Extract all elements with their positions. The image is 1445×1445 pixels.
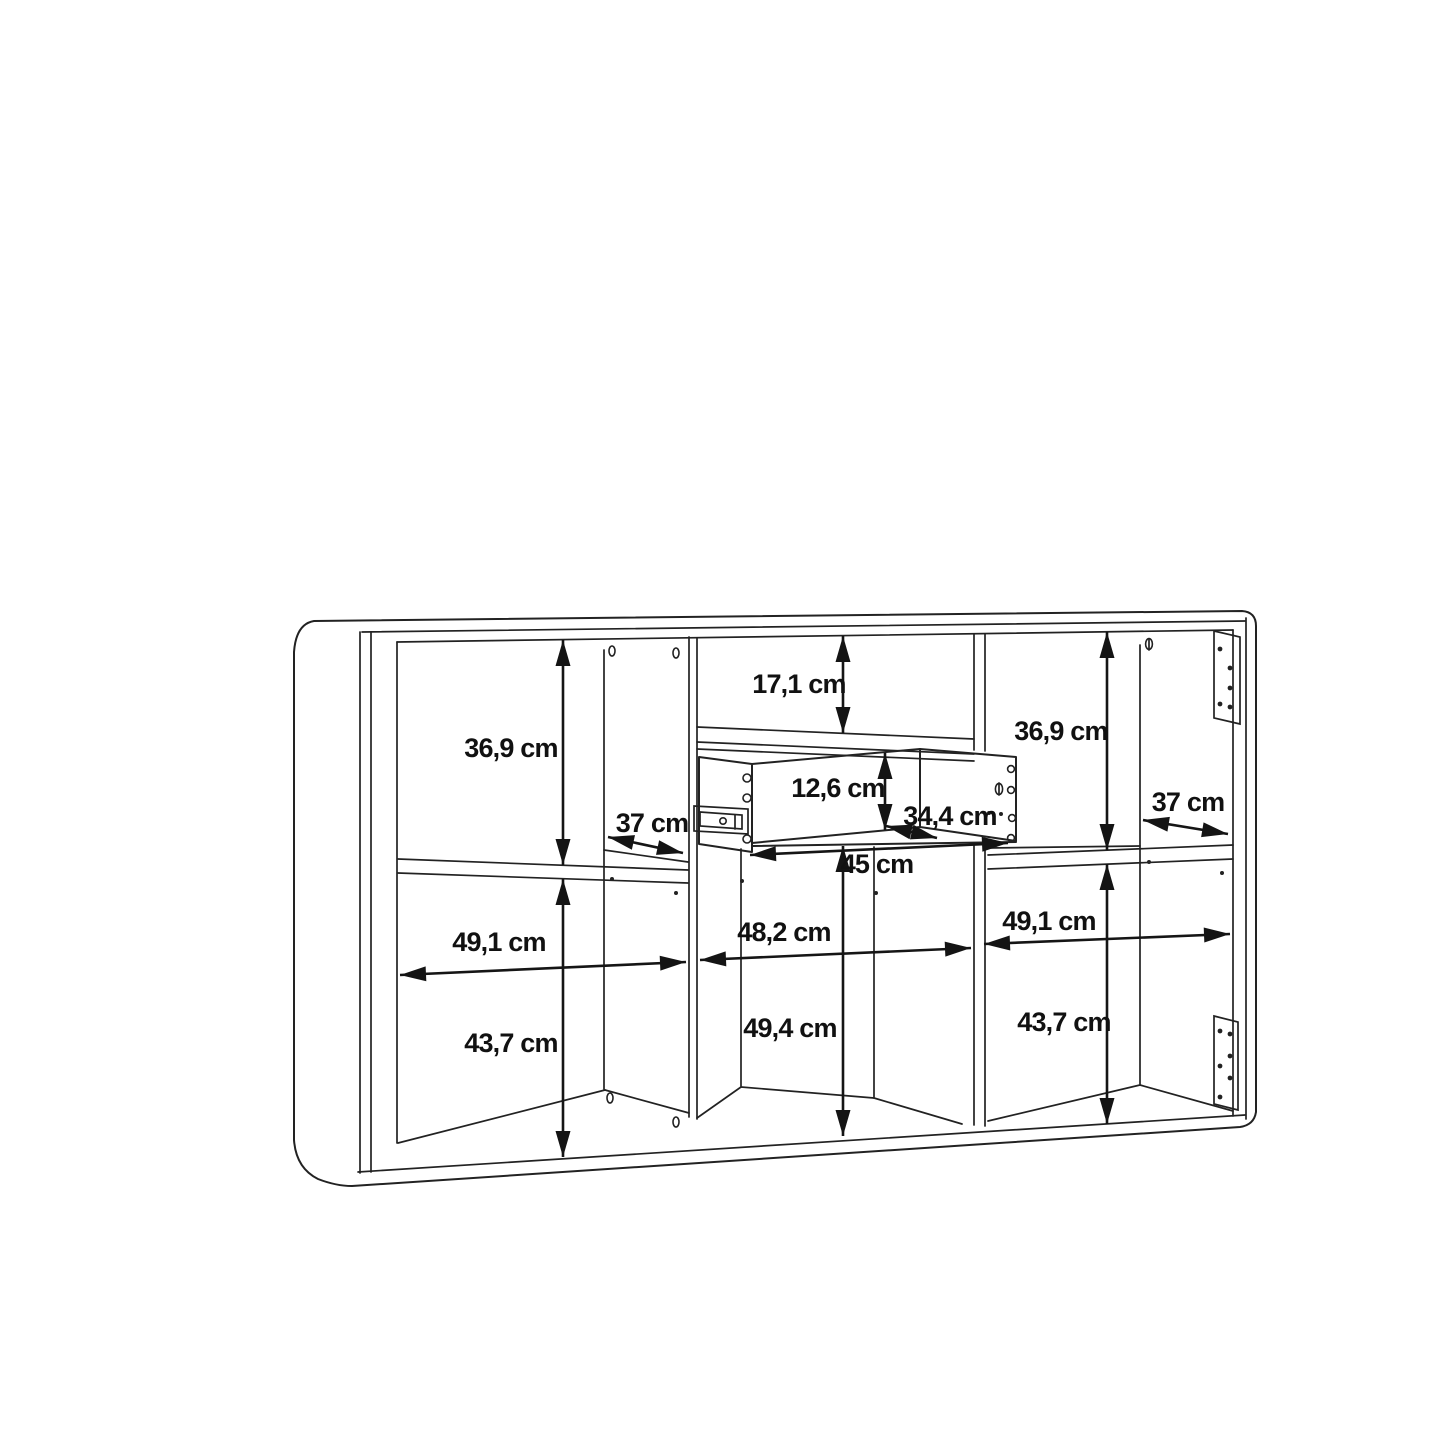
label-left-width: 49,1 cm xyxy=(452,927,545,957)
label-drawer-depth: 34,4 cm xyxy=(903,801,996,831)
arrow-right-shelf-depth xyxy=(1143,820,1228,834)
drawer-slide-rail xyxy=(694,806,748,834)
hinge-plate-bottom xyxy=(1214,1016,1238,1110)
label-right-width: 49,1 cm xyxy=(1002,906,1095,936)
arrow-left-width xyxy=(400,962,686,975)
label-left-top-height: 36,9 cm xyxy=(464,733,557,763)
label-middle-width: 48,2 cm xyxy=(737,917,830,947)
label-right-top-height: 36,9 cm xyxy=(1014,716,1107,746)
technical-drawing-svg: 36,9 cm 17,1 cm 36,9 cm 12,6 cm 37 cm 34… xyxy=(0,0,1445,1445)
pin-holes xyxy=(607,639,1224,1127)
hinge-plate-top xyxy=(1214,631,1240,724)
arrow-left-shelf-depth xyxy=(608,837,683,853)
label-right-bottom-height: 43,7 cm xyxy=(1017,1007,1110,1037)
label-right-shelf-depth: 37 cm xyxy=(1152,787,1225,817)
label-middle-top-clearance: 17,1 cm xyxy=(752,669,845,699)
label-left-bottom-height: 43,7 cm xyxy=(464,1028,557,1058)
cabinet-dimension-drawing: 36,9 cm 17,1 cm 36,9 cm 12,6 cm 37 cm 34… xyxy=(0,0,1445,1445)
vertical-dividers xyxy=(689,634,985,1126)
label-left-shelf-depth: 37 cm xyxy=(616,808,689,838)
label-middle-bottom-height: 49,4 cm xyxy=(743,1013,836,1043)
label-drawer-width: 45 cm xyxy=(841,849,914,879)
dimension-arrows xyxy=(400,632,1230,1157)
label-drawer-height: 12,6 cm xyxy=(791,773,884,803)
